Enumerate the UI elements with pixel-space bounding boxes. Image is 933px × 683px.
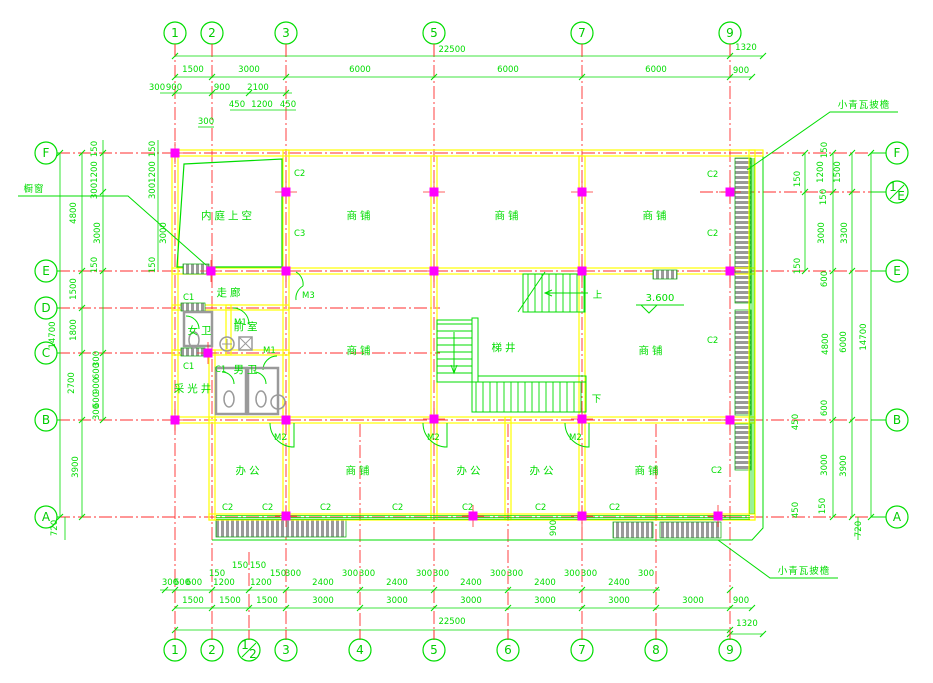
column-marker [578, 188, 587, 197]
axis-bubble-label: C [42, 346, 50, 360]
dimension-text: 1200 [250, 578, 272, 588]
door-window-tag: M2 [274, 433, 287, 443]
column-marker [171, 416, 180, 425]
dimension-text: 900 [92, 378, 102, 394]
door-window-tag: C2 [535, 503, 546, 513]
axis-bubble-label: 1 [889, 180, 897, 194]
display-window-hatch [183, 264, 209, 274]
column-marker [282, 512, 291, 521]
room-label: 女卫 [188, 324, 215, 337]
column-marker [204, 349, 213, 358]
dimension-text: 600 [820, 400, 830, 416]
axis-bubble-label: 2 [208, 643, 216, 657]
dimension-text: 1800 [69, 319, 79, 341]
floor-plan: 小青瓦披檐 小青瓦披檐 橱窗 3.600 上 下 225001320150030… [0, 0, 933, 683]
axis-bubble-label: 5 [430, 26, 438, 40]
dimension-text: 1500 [219, 596, 241, 606]
door-window-tag: C2 [707, 336, 718, 346]
axis-bubble-label: 6 [504, 643, 512, 657]
stair-break-line [518, 272, 545, 312]
door-window-tags: C2C3C1M3M1M1C1C1M2M2M2C2C2C2C2C2C2C2C2C2… [183, 169, 722, 513]
eave-hatch-bottom-mid [613, 522, 653, 538]
dimension-text: 1320 [735, 43, 757, 53]
dimension-text: 150 [270, 569, 286, 579]
dimension-text: 2400 [534, 578, 556, 588]
eave-hatch-strips [216, 158, 751, 538]
eave-label-bottom: 小青瓦披檐 [778, 565, 831, 577]
level-marker-triangle [641, 305, 657, 313]
column-marker [726, 188, 735, 197]
dimension-text: 150 [90, 257, 100, 273]
door-window-tag: M2 [569, 433, 582, 443]
column-marker [282, 416, 291, 425]
dimension-text: 1320 [736, 619, 758, 629]
room-label: 走廊 [217, 286, 244, 299]
dimension-text: 3900 [839, 455, 849, 477]
floor-plan-canvas: 小青瓦披檐 小青瓦披檐 橱窗 3.600 上 下 225001320150030… [0, 0, 933, 683]
door-window-tag: C2 [294, 169, 305, 179]
door-window-tag: C2 [262, 503, 273, 513]
dimension-text: 1200 [148, 161, 158, 183]
axis-bubble-label: 4 [356, 643, 364, 657]
column-marker [430, 267, 439, 276]
stair-rail-vertical [472, 318, 478, 382]
stair-down-label: 下 [592, 394, 603, 405]
dimension-text: 150 [793, 258, 803, 274]
dimension-text: 6000 [349, 65, 371, 75]
dimension-text: 300 [581, 569, 597, 579]
dimension-text: 4800 [69, 202, 79, 224]
dimension-text: 2400 [460, 578, 482, 588]
door-window-tag: C1 [215, 365, 226, 375]
dimension-text: 3000 [817, 222, 827, 244]
axis-bubble-label: 7 [578, 643, 586, 657]
dimension-text: 6000 [497, 65, 519, 75]
dimension-text: 150 [793, 171, 803, 187]
axis-bubble-label: 3 [282, 643, 290, 657]
dimension-text: 3900 [71, 456, 81, 478]
column-marker [726, 416, 735, 425]
axis-bubble-label: 2 [208, 26, 216, 40]
column-marker [578, 415, 587, 424]
dimension-text: 900 [214, 83, 230, 93]
axis-bubble-label: 1 [171, 643, 179, 657]
column-marker [578, 512, 587, 521]
stair-flight-bottom [472, 382, 586, 412]
eave-outline [212, 153, 763, 540]
axis-bubble-label: 9 [726, 643, 734, 657]
dimension-text: 1500 [69, 278, 79, 300]
dimension-text: 1500 [833, 161, 843, 183]
column-marker [714, 512, 723, 521]
door-window-tag: M1 [263, 346, 276, 356]
axis-bubble-label: D [41, 301, 50, 315]
dimension-text: 1500 [182, 65, 204, 75]
room-label: 商铺 [347, 344, 374, 357]
axis-bubble-label: B [893, 413, 901, 427]
dimension-text: 2700 [67, 372, 77, 394]
room-label: 商铺 [635, 464, 662, 477]
dimension-text: 900 [733, 66, 749, 76]
dimension-text: 150 [820, 142, 830, 158]
door-window-tag: M3 [302, 291, 315, 301]
axis-bubble-label: 8 [652, 643, 660, 657]
stair-top-window [653, 270, 677, 279]
dimension-text: 900 [166, 83, 182, 93]
axis-bubble-label: F [43, 146, 50, 160]
door-window-tag: C3 [294, 229, 305, 239]
eave-hatch-bottom-left [216, 520, 346, 537]
door-window-tag: M1 [234, 318, 247, 328]
room-label: 商铺 [639, 344, 666, 357]
dimension-text: 14700 [859, 323, 869, 350]
column-marker [171, 149, 180, 158]
room-label: 商铺 [643, 209, 670, 222]
axis-bubble-label: B [42, 413, 50, 427]
dimension-text: 150 [148, 141, 158, 157]
dimension-text: 720 [854, 521, 864, 537]
room-label: 采光井 [174, 382, 215, 395]
dimension-text: 3000 [682, 596, 704, 606]
column-marker [726, 267, 735, 276]
dimension-text: 150 [148, 257, 158, 273]
axis-bubble-label: 9 [726, 26, 734, 40]
column-marker [207, 267, 216, 276]
dimension-text: 2400 [386, 578, 408, 588]
room-label: 办公 [236, 464, 263, 477]
door-window-tag: C2 [392, 503, 403, 513]
door-window-tag: C1 [183, 293, 194, 303]
dimension-text: 300 [359, 569, 375, 579]
axis-bubble-label: A [42, 510, 51, 524]
axis-bubble-label: 1 [241, 638, 249, 652]
dimension-text: 1500 [182, 596, 204, 606]
eave-hatch-bottom-right [660, 522, 721, 538]
dimension-text: 300 [90, 183, 100, 199]
dimension-text: 900 [733, 596, 749, 606]
room-label: 商铺 [347, 209, 374, 222]
eave-label-top: 小青瓦披檐 [838, 99, 891, 111]
stair-up-label: 上 [593, 290, 604, 301]
column-marker [430, 188, 439, 197]
dimension-text: 150 [90, 141, 100, 157]
dimension-text: 2400 [608, 578, 630, 588]
door-window-tag: C2 [707, 229, 718, 239]
dimension-text: 1200 [816, 161, 826, 183]
door-window-tag: C2 [462, 503, 473, 513]
window-bands [216, 158, 754, 519]
dimension-text: 300 [507, 569, 523, 579]
door-window-tag: M2 [427, 433, 440, 443]
door-window-tag: C2 [707, 170, 718, 180]
axis-bubble-label: 2 [249, 647, 257, 661]
axis-bubble-label: A [893, 510, 902, 524]
toilet-icon [256, 391, 266, 407]
axis-bubble-label: E [893, 264, 901, 278]
level-value: 3.600 [646, 293, 675, 304]
room-label: 商铺 [346, 464, 373, 477]
dimension-text: 150 [818, 498, 828, 514]
dimension-text: 300 [564, 569, 580, 579]
dimension-text: 450 [791, 502, 801, 518]
dimension-text: 22500 [438, 617, 465, 627]
room-label: 梯井 [492, 341, 519, 354]
axis-bubble-label: E [897, 189, 905, 203]
door-window-tag: C2 [711, 466, 722, 476]
shop-window-label: 橱窗 [23, 183, 44, 195]
dimension-text: 3000 [534, 596, 556, 606]
column-marker [578, 267, 587, 276]
dimension-text: 22500 [438, 45, 465, 55]
dimension-text: 3000 [608, 596, 630, 606]
dimension-text: 600 [186, 578, 202, 588]
dimension-text: 450 [791, 414, 801, 430]
dimension-text: 300 [490, 569, 506, 579]
dimension-text: 300 [416, 569, 432, 579]
dimension-text: 300 [198, 117, 214, 127]
dimension-text: 1200 [213, 578, 235, 588]
dimension-text: 3000 [159, 222, 169, 244]
dimension-text: 1500 [256, 596, 278, 606]
doors [186, 272, 589, 447]
dimension-text: 3000 [312, 596, 334, 606]
dimension-text: 600 [92, 363, 102, 379]
dimension-text: 300 [285, 569, 301, 579]
axis-bubble-label: F [894, 146, 901, 160]
column-marker [282, 267, 291, 276]
dimension-text: 300 [342, 569, 358, 579]
dimension-text: 300 [638, 569, 654, 579]
c1-window-hatch [181, 303, 205, 311]
dimension-text: 1200 [90, 161, 100, 183]
dimension-text: 900 [549, 520, 559, 536]
axis-bubble-label: 3 [282, 26, 290, 40]
stair-rail-horizontal [478, 376, 586, 382]
axis-bubble-label: 5 [430, 643, 438, 657]
dimension-text: 2100 [247, 83, 269, 93]
dimension-text: 450 [280, 100, 296, 110]
room-label: 办公 [457, 464, 484, 477]
dimension-text: 600 [820, 271, 830, 287]
dimension-text: 4800 [821, 333, 831, 355]
axis-bubble-label: E [42, 264, 50, 278]
dimension-text: 3000 [238, 65, 260, 75]
door-window-tag: C2 [222, 503, 233, 513]
dimension-text: 300 [433, 569, 449, 579]
room-label: 商铺 [495, 209, 522, 222]
eave-edge [212, 153, 763, 540]
dimension-text: 150 [232, 561, 248, 571]
axis-bubble-label: 1 [171, 26, 179, 40]
room-label: 办公 [530, 464, 557, 477]
room-label: 内庭上空 [201, 209, 255, 222]
column-marker [282, 188, 291, 197]
dimension-text: 150 [819, 189, 829, 205]
toilet-icon [224, 391, 234, 407]
column-marker [430, 415, 439, 424]
axis-bubble-label: 7 [578, 26, 586, 40]
dimension-text: 1200 [251, 100, 273, 110]
dimension-text: 3000 [386, 596, 408, 606]
dimension-text: 6000 [645, 65, 667, 75]
dimension-text: 300 [92, 404, 102, 420]
dimension-text: 6000 [839, 331, 849, 353]
dimension-text: 3300 [840, 222, 850, 244]
door-window-tag: C2 [609, 503, 620, 513]
room-labels: 内庭上空商铺商铺商铺走廊女卫前室男卫采光井商铺梯井商铺办公商铺办公办公商铺 [174, 209, 670, 477]
room-label: 男卫 [234, 364, 261, 376]
c1-window-hatch [181, 348, 205, 356]
dimension-text: 3000 [460, 596, 482, 606]
dimension-text: 300 [148, 183, 158, 199]
dimension-text: 150 [250, 561, 266, 571]
door-window-tag: C2 [320, 503, 331, 513]
dimension-text: 3000 [820, 454, 830, 476]
dimension-text: 450 [229, 100, 245, 110]
dimension-text: 3000 [93, 222, 103, 244]
door-window-tag: C1 [183, 362, 194, 372]
dimension-text: 300 [149, 83, 165, 93]
dimension-text: 2400 [312, 578, 334, 588]
